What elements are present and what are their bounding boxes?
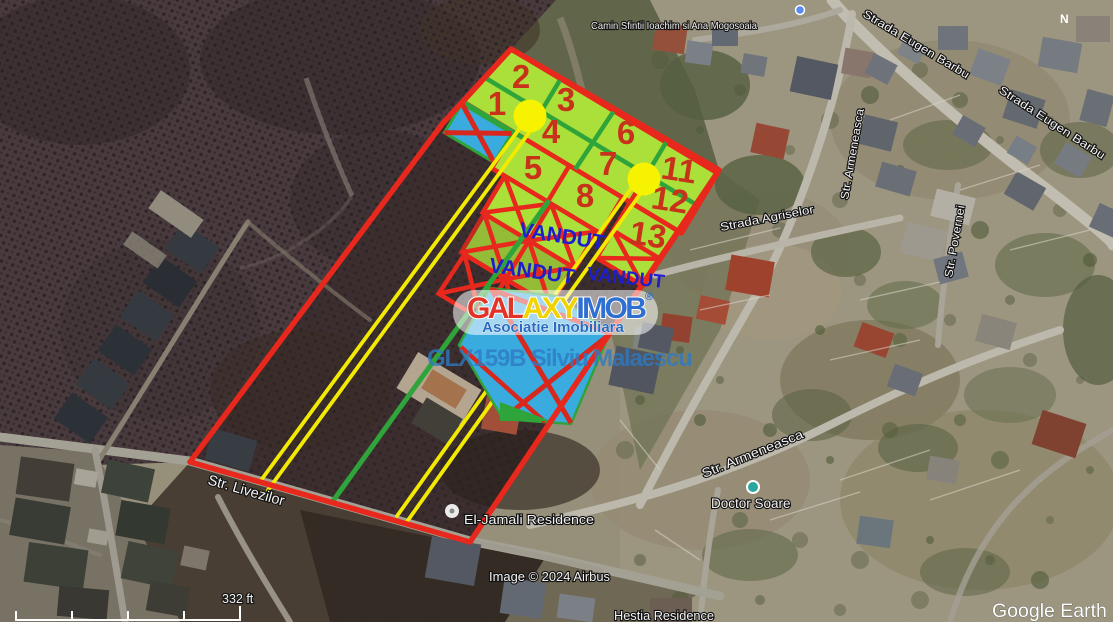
- svg-text:12: 12: [649, 178, 691, 220]
- svg-text:®: ®: [645, 291, 653, 303]
- svg-text:Camin Sfintii Ioachim si Ana M: Camin Sfintii Ioachim si Ana Mogosoaia: [591, 20, 757, 32]
- svg-text:332 ft: 332 ft: [222, 592, 254, 606]
- svg-text:5: 5: [524, 149, 542, 186]
- svg-text:8: 8: [576, 177, 594, 214]
- svg-text:2: 2: [512, 58, 530, 95]
- svg-text:1: 1: [488, 85, 506, 122]
- svg-text:4: 4: [542, 113, 561, 150]
- svg-text:Asociatie Imobiliara: Asociatie Imobiliara: [482, 319, 624, 336]
- svg-text:Google Earth: Google Earth: [992, 600, 1107, 622]
- svg-text:GLX159B Silviu Malaescu: GLX159B Silviu Malaescu: [427, 345, 692, 372]
- svg-text:7: 7: [599, 145, 617, 182]
- svg-text:Hestia Residence: Hestia Residence: [614, 608, 714, 622]
- svg-text:13: 13: [627, 213, 669, 255]
- svg-text:Image © 2024 Airbus: Image © 2024 Airbus: [489, 570, 610, 584]
- svg-text:6: 6: [617, 114, 635, 151]
- svg-text:Doctor Soare: Doctor Soare: [711, 496, 791, 511]
- svg-text:El-Jamali Residence: El-Jamali Residence: [464, 512, 594, 527]
- svg-text:N: N: [1060, 12, 1069, 26]
